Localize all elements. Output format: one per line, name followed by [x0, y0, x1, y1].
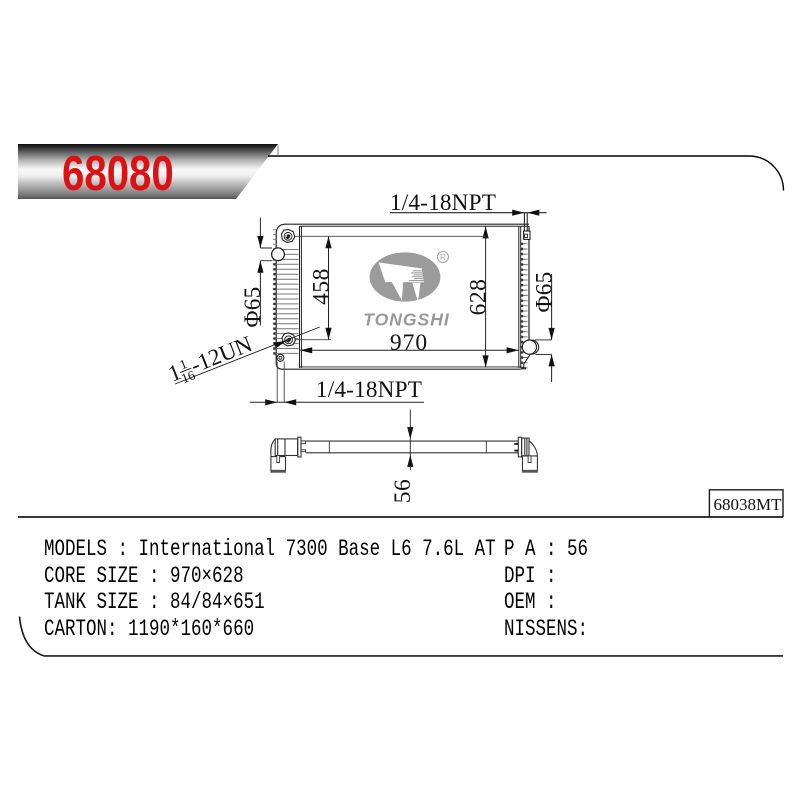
svg-text:Φ65: Φ65 [240, 286, 266, 327]
svg-text:-12UN: -12UN [187, 331, 256, 378]
svg-text:628: 628 [466, 279, 492, 316]
svg-text:458: 458 [308, 268, 334, 305]
svg-text:68038MT: 68038MT [714, 495, 783, 514]
svg-text:Φ65: Φ65 [531, 271, 557, 312]
svg-text:TONGSHI: TONGSHI [363, 310, 450, 330]
svg-text:970: 970 [390, 330, 428, 356]
svg-text:1/4-18NPT: 1/4-18NPT [316, 377, 422, 403]
svg-text:56: 56 [390, 479, 416, 504]
svg-text:R: R [440, 252, 446, 262]
svg-text:1/4-18NPT: 1/4-18NPT [390, 190, 496, 216]
